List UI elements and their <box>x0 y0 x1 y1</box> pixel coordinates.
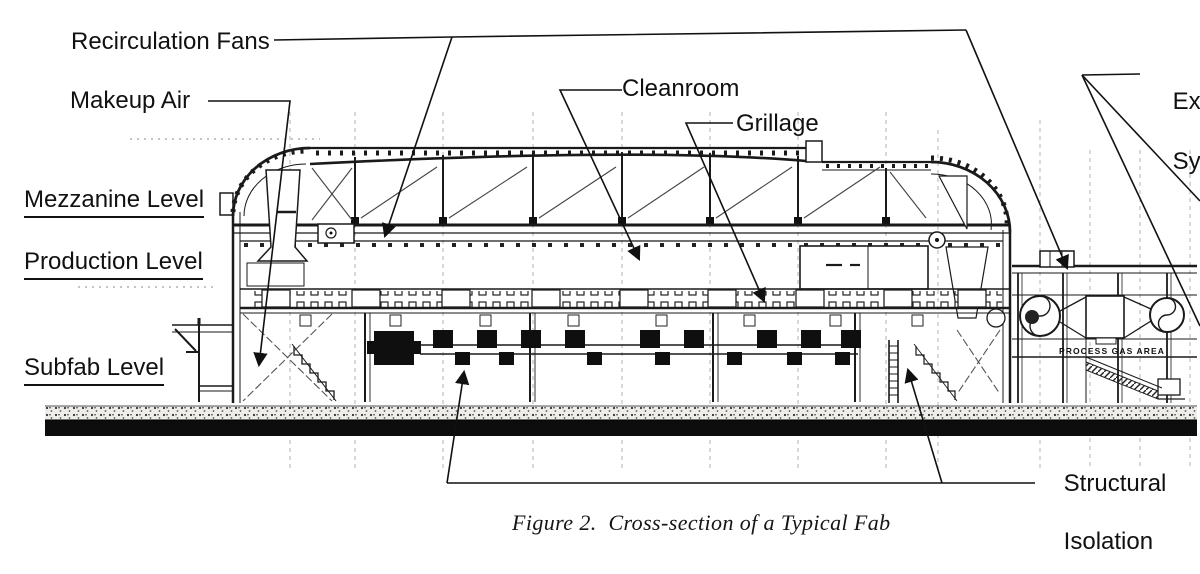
exhaust-systems-leader <box>1082 74 1140 75</box>
makeup-air-unit <box>247 170 354 286</box>
exhaust-systems-line2: Systems <box>1173 148 1200 175</box>
recirculation-fans-arrow-left <box>385 37 452 236</box>
label-grillage: Grillage <box>736 110 819 138</box>
label-production-level: Production Level <box>24 248 203 280</box>
makeup-air-louver-canopy <box>172 318 233 402</box>
label-makeup-air: Makeup Air <box>70 87 190 115</box>
subfab <box>243 313 1000 403</box>
exhaust-systems-line1: Exhaust <box>1173 88 1200 115</box>
label-mezzanine-level: Mezzanine Level <box>24 186 204 218</box>
exhaust-fan-assembly <box>1020 296 1184 344</box>
structural-isolation-line1: Structural <box>1064 470 1167 497</box>
cleanroom-arrow <box>560 90 639 259</box>
figure-caption: Figure 2. Cross-section of a Typical Fab <box>512 509 891 538</box>
figure-2-fab-cross-section: PROCESS GAS AREA Recirculat <box>0 0 1200 574</box>
structural-isolation-line2: Isolation <box>1064 528 1153 555</box>
subfab-ladder-stairs <box>889 340 957 403</box>
process-equipment <box>367 330 861 365</box>
production-level-text: Production Level <box>24 248 203 280</box>
label-cleanroom: Cleanroom <box>622 75 739 103</box>
process-gas-area-label: PROCESS GAS AREA <box>1059 346 1165 356</box>
recirculation-fans-arrow-right <box>966 30 1067 268</box>
label-subfab-level: Subfab Level <box>24 354 164 386</box>
label-recirculation-fans: Recirculation Fans <box>71 28 270 56</box>
foundation <box>45 406 1197 436</box>
mezzanine-level-text: Mezzanine Level <box>24 186 204 218</box>
label-structural-isolation-break: Structural Isolation Break <box>1037 440 1166 574</box>
subfab-level-text: Subfab Level <box>24 354 164 386</box>
recirculation-fans-leader <box>274 30 966 40</box>
label-exhaust-systems: Exhaust Systems <box>1146 57 1200 207</box>
grillage-arrow <box>686 123 764 301</box>
